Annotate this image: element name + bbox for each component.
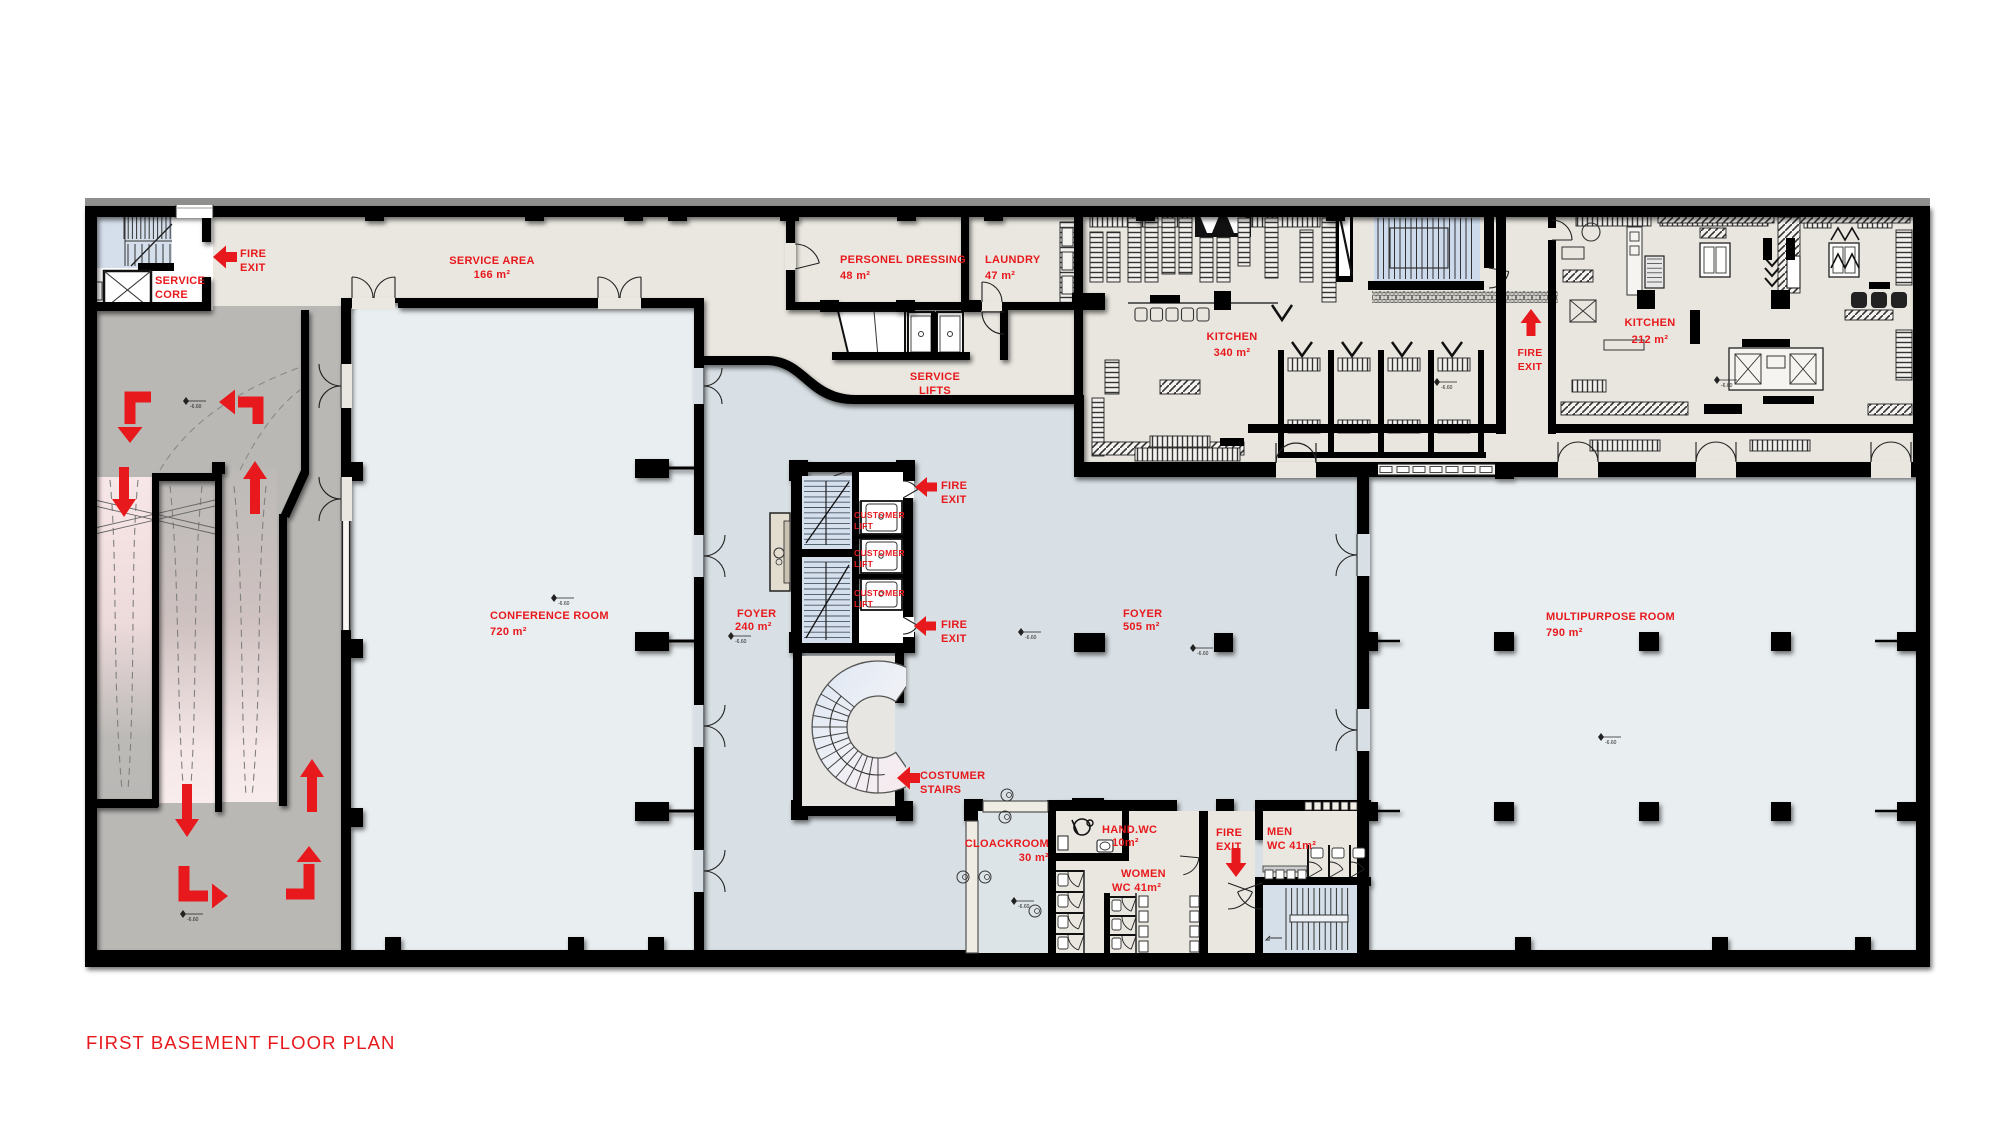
svg-text:EXIT: EXIT [941,494,967,506]
svg-text:KITCHEN: KITCHEN [1207,331,1258,343]
svg-text:STAIRS: STAIRS [920,784,961,796]
svg-text:SERVICE AREA: SERVICE AREA [449,255,535,267]
svg-text:-6.60: -6.60 [1441,385,1453,391]
svg-text:CLOACKROOM: CLOACKROOM [965,838,1049,850]
svg-text:240 m²: 240 m² [735,621,772,633]
svg-text:FIRE: FIRE [941,480,967,492]
svg-text:MEN: MEN [1267,826,1292,838]
svg-text:COSTUMER: COSTUMER [920,770,985,782]
svg-text:10m²: 10m² [1112,837,1139,849]
svg-text:30 m²: 30 m² [1019,852,1049,864]
svg-text:47 m²: 47 m² [985,270,1015,282]
svg-text:FIRE: FIRE [941,619,967,631]
svg-text:-6.60: -6.60 [1018,904,1030,910]
svg-text:CONFERENCE ROOM: CONFERENCE ROOM [490,610,609,622]
svg-text:WC 41m²: WC 41m² [1112,882,1161,894]
svg-text:WC 41m²: WC 41m² [1267,840,1316,852]
svg-text:FOYER: FOYER [1123,608,1162,620]
svg-text:CORE: CORE [155,289,188,301]
svg-text:166 m²: 166 m² [474,269,511,281]
svg-text:CUSTOMER: CUSTOMER [854,548,905,558]
svg-text:FIRST BASEMENT FLOOR PLAN: FIRST BASEMENT FLOOR PLAN [86,1032,396,1053]
svg-text:505 m²: 505 m² [1123,621,1160,633]
svg-text:SERVICE: SERVICE [155,275,205,287]
svg-text:-6.60: -6.60 [735,639,747,645]
svg-text:SERVICE: SERVICE [910,371,960,383]
svg-text:340 m²: 340 m² [1214,347,1251,359]
svg-text:790 m²: 790 m² [1546,627,1583,639]
svg-text:LIFT: LIFT [854,559,874,569]
svg-text:-6.60: -6.60 [1197,651,1209,657]
svg-text:FIRE: FIRE [1216,827,1242,839]
svg-text:LIFT: LIFT [854,521,874,531]
svg-text:-6.60: -6.60 [558,601,570,607]
svg-text:EXIT: EXIT [941,633,967,645]
svg-text:HAND.WC: HAND.WC [1102,824,1157,836]
svg-text:FIRE: FIRE [1517,347,1542,359]
svg-text:MULTIPURPOSE ROOM: MULTIPURPOSE ROOM [1546,611,1675,623]
svg-text:48 m²: 48 m² [840,270,870,282]
svg-text:CUSTOMER: CUSTOMER [854,588,905,598]
svg-text:PERSONEL DRESSING: PERSONEL DRESSING [840,254,966,266]
svg-text:EXIT: EXIT [1518,361,1543,373]
svg-text:LIFTS: LIFTS [919,385,951,397]
svg-text:720 m²: 720 m² [490,626,527,638]
svg-text:-6.60: -6.60 [1025,635,1037,641]
svg-text:FOYER: FOYER [737,608,776,620]
svg-text:-6.60: -6.60 [190,404,202,410]
svg-text:212 m²: 212 m² [1632,334,1669,346]
svg-text:EXIT: EXIT [240,262,266,274]
svg-text:-6.60: -6.60 [1721,383,1733,389]
svg-text:-6.60: -6.60 [1605,740,1617,746]
svg-text:CUSTOMER: CUSTOMER [854,510,905,520]
svg-text:-6.60: -6.60 [187,917,199,923]
svg-text:WOMEN: WOMEN [1121,868,1166,880]
svg-text:EXIT: EXIT [1216,841,1242,853]
svg-text:LIFT: LIFT [854,599,874,609]
svg-text:FIRE: FIRE [240,248,266,260]
svg-text:KITCHEN: KITCHEN [1625,317,1676,329]
svg-text:LAUNDRY: LAUNDRY [985,254,1041,266]
